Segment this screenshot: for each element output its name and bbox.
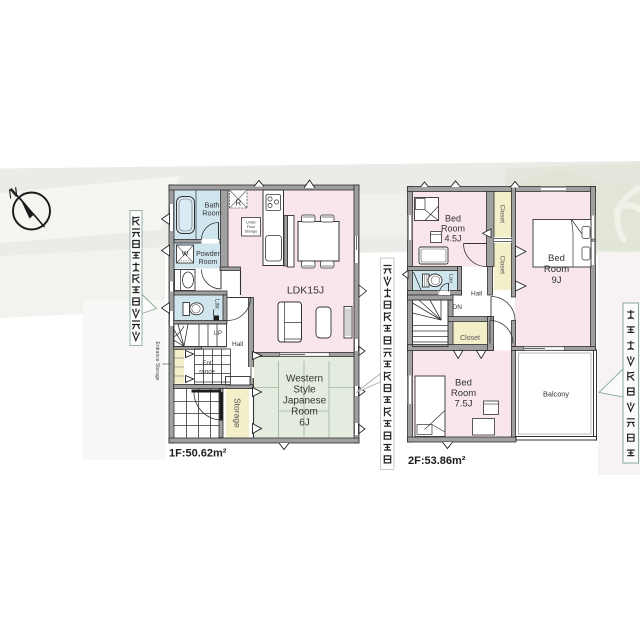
- svg-text:rance: rance: [199, 369, 215, 376]
- svg-text:LDK15J: LDK15J: [287, 285, 324, 297]
- svg-text:Powder: Powder: [196, 251, 220, 258]
- svg-text:6J: 6J: [299, 418, 310, 429]
- svg-text:7.5J: 7.5J: [455, 399, 473, 410]
- svg-text:2F:53.86m²: 2F:53.86m²: [408, 455, 466, 467]
- svg-text:UP: UP: [214, 331, 222, 337]
- svg-text:Room: Room: [291, 407, 318, 418]
- svg-text:Room: Room: [441, 224, 465, 234]
- svg-text:Hall: Hall: [232, 341, 244, 348]
- svg-text:W: W: [182, 251, 189, 258]
- svg-text:Room: Room: [202, 209, 221, 218]
- svg-text:Balcony: Balcony: [543, 390, 569, 399]
- svg-text:Floor: Floor: [247, 225, 256, 229]
- svg-text:Japanese: Japanese: [283, 396, 327, 407]
- svg-text:Bed: Bed: [445, 214, 461, 224]
- svg-text:Lav.: Lav.: [214, 299, 220, 310]
- svg-text:Style: Style: [293, 385, 316, 396]
- svg-text:Storage: Storage: [233, 398, 243, 428]
- svg-text:Bed: Bed: [455, 378, 472, 389]
- svg-text:R: R: [236, 199, 242, 208]
- svg-text:Western: Western: [286, 374, 323, 385]
- svg-text:Ent: Ent: [202, 360, 212, 367]
- svg-text:Bed: Bed: [548, 253, 565, 264]
- svg-text:Room: Room: [199, 259, 218, 266]
- svg-text:Room: Room: [544, 264, 569, 275]
- svg-text:DN: DN: [453, 304, 463, 311]
- svg-text:4.5J: 4.5J: [444, 234, 461, 244]
- svg-text:Hall: Hall: [471, 291, 483, 298]
- svg-text:9J: 9J: [551, 275, 561, 286]
- svg-text:Storage: Storage: [245, 230, 258, 234]
- svg-text:Closet: Closet: [499, 256, 506, 275]
- svg-text:Room: Room: [451, 388, 476, 399]
- svg-text:Under: Under: [246, 221, 257, 225]
- svg-text:1F:50.62m²: 1F:50.62m²: [169, 448, 227, 460]
- svg-text:Entrance Storage: Entrance Storage: [154, 342, 160, 381]
- svg-text:Closet: Closet: [499, 205, 506, 224]
- svg-text:Closet: Closet: [460, 335, 480, 342]
